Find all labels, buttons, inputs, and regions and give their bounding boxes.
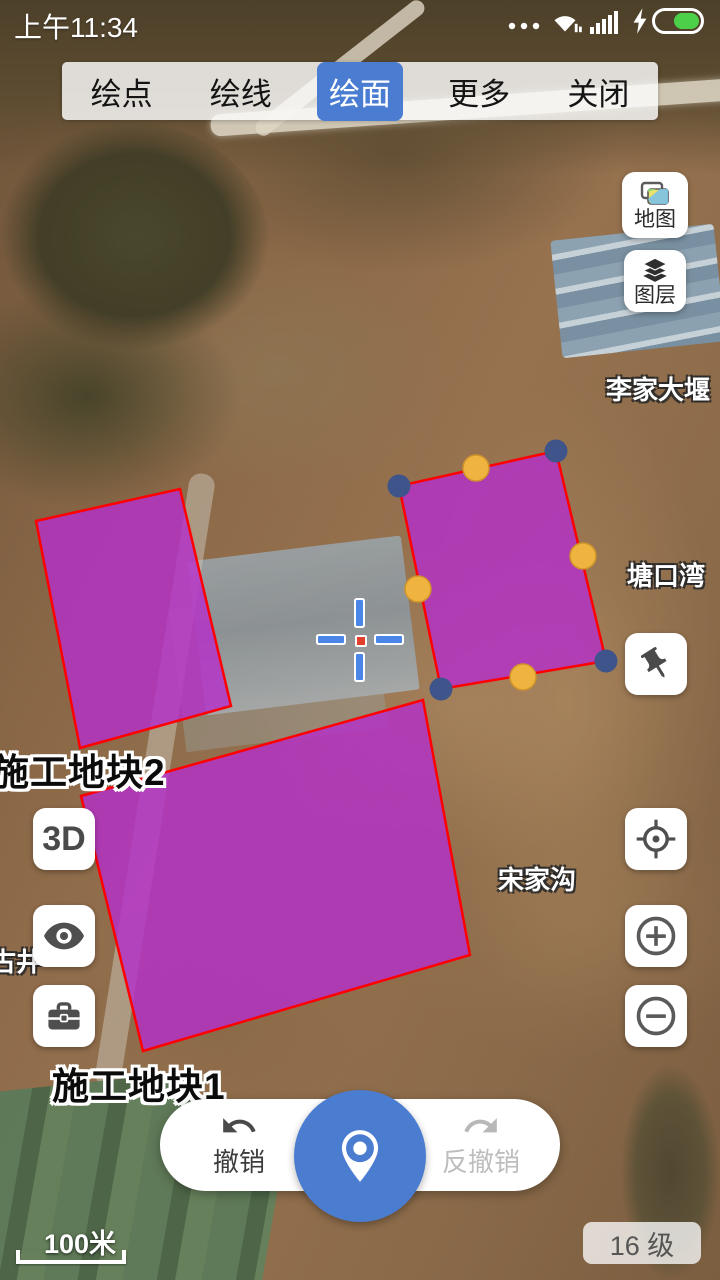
view-3d-label: 3D	[42, 820, 85, 859]
clock: 上午11:34	[14, 6, 138, 46]
zoom-in-icon	[635, 915, 677, 957]
zoom-level-text: 16 级	[610, 1224, 675, 1263]
locate-icon	[636, 819, 676, 859]
midpoint-handle[interactable]	[463, 455, 489, 481]
draw-toolbar: 绘点 绘线 绘面 更多 关闭	[62, 62, 658, 120]
my-location-button[interactable]	[294, 1090, 426, 1222]
toolbox-icon	[47, 1001, 81, 1031]
construction-polygon-editing-plot[interactable]	[399, 451, 606, 689]
tab-close[interactable]: 关闭	[555, 62, 641, 121]
visibility-button[interactable]	[33, 905, 95, 967]
vertex-handle[interactable]	[430, 678, 453, 701]
pushpin-icon	[631, 639, 681, 689]
place-label: 塘口湾	[627, 556, 705, 593]
vertex-handle[interactable]	[388, 475, 411, 498]
tab-more[interactable]: 更多	[436, 62, 522, 121]
redo-button[interactable]: 反撤销	[436, 1111, 526, 1179]
midpoint-handle[interactable]	[510, 664, 536, 690]
layers-button-label: 图层	[634, 285, 676, 306]
signal-bars-icon	[590, 8, 624, 34]
locate-button[interactable]	[625, 808, 687, 870]
basemap-button-label: 地图	[634, 209, 676, 230]
midpoint-handle[interactable]	[570, 543, 596, 569]
pushpin-button[interactable]	[625, 633, 687, 695]
layers-button[interactable]: 图层	[624, 250, 686, 312]
map-icon	[640, 181, 670, 207]
scale-bar-line	[16, 1250, 126, 1264]
tab-draw-point[interactable]: 绘点	[79, 62, 165, 121]
layers-icon	[640, 257, 670, 283]
zoom-out-button[interactable]	[625, 985, 687, 1047]
notification-dots-icon	[508, 22, 542, 30]
location-pin-icon	[329, 1125, 391, 1187]
tab-draw-polygon[interactable]: 绘面	[317, 62, 403, 121]
zoom-level-badge: 16 级	[583, 1222, 701, 1264]
battery-icon	[652, 8, 704, 34]
zoom-in-button[interactable]	[625, 905, 687, 967]
zoom-out-icon	[635, 995, 677, 1037]
undo-icon	[220, 1111, 258, 1141]
midpoint-handle[interactable]	[405, 576, 431, 602]
undo-button[interactable]: 撤销	[194, 1111, 284, 1179]
construction-polygon-plot-2[interactable]	[36, 489, 231, 748]
eye-icon	[44, 921, 84, 951]
place-label: 李家大堰	[606, 370, 710, 407]
place-label: 宋家沟	[498, 860, 576, 897]
charging-bolt-icon	[632, 8, 648, 34]
undo-label: 撤销	[213, 1142, 265, 1179]
wifi-icon	[548, 7, 582, 35]
vertex-handle[interactable]	[595, 650, 618, 673]
tab-draw-line[interactable]: 绘线	[198, 62, 284, 121]
redo-label: 反撤销	[442, 1142, 520, 1179]
polygon-label: 施工地块2	[0, 742, 166, 796]
redo-icon	[462, 1111, 500, 1141]
basemap-button[interactable]: 地图	[622, 172, 688, 238]
view-3d-button[interactable]: 3D	[33, 808, 95, 870]
status-bar: 上午11:34	[0, 0, 720, 44]
vertex-handle[interactable]	[545, 440, 568, 463]
toolbox-button[interactable]	[33, 985, 95, 1047]
